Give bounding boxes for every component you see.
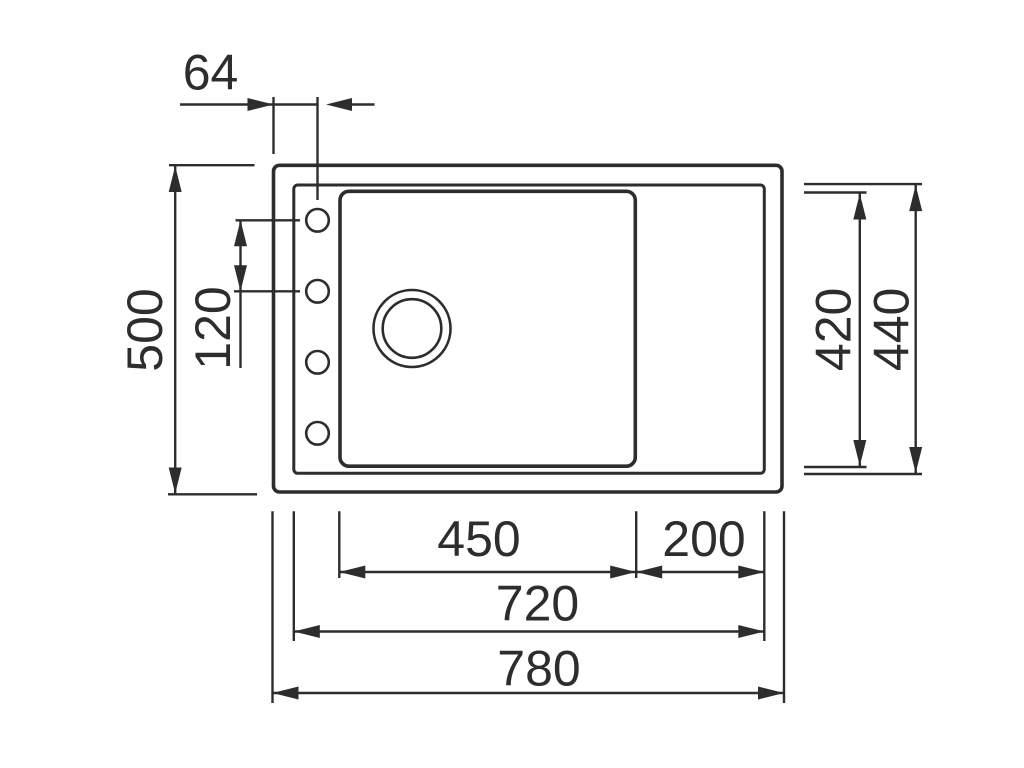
svg-text:720: 720 <box>496 576 579 632</box>
svg-text:450: 450 <box>437 511 520 567</box>
svg-text:200: 200 <box>662 511 745 567</box>
svg-text:440: 440 <box>863 288 919 371</box>
svg-text:64: 64 <box>183 45 239 101</box>
svg-text:420: 420 <box>806 288 862 371</box>
svg-text:120: 120 <box>185 286 241 369</box>
svg-text:500: 500 <box>117 288 173 371</box>
svg-text:780: 780 <box>497 641 580 697</box>
